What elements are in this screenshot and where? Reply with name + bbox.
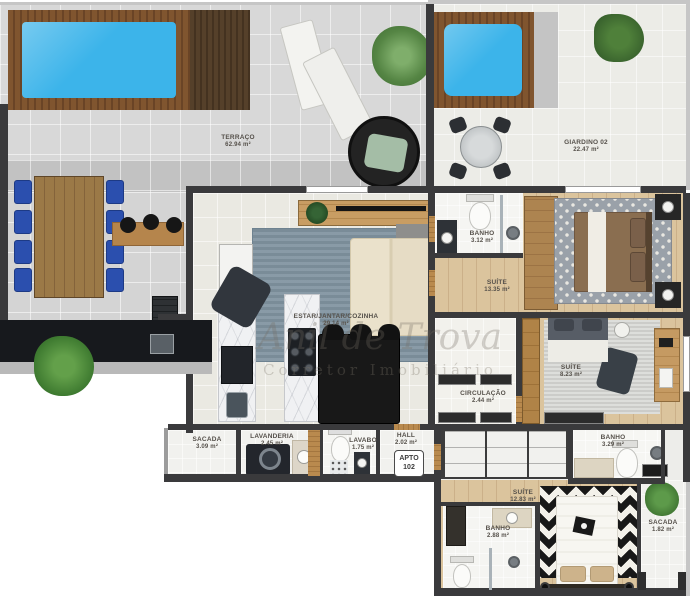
label-circulacao: CIRCULAÇÃO 2.44 m² xyxy=(460,390,506,406)
pool-water xyxy=(22,22,176,98)
dining-chair-blue xyxy=(106,268,124,292)
toilet xyxy=(453,564,471,588)
suite2-door xyxy=(516,396,522,422)
bed-pillow xyxy=(560,566,586,582)
bath-vanity xyxy=(574,458,614,478)
terrace-dining-table xyxy=(34,176,104,298)
wardrobe-door xyxy=(480,412,512,423)
room-area: 2.02 m² xyxy=(395,440,417,448)
suite2-window xyxy=(683,336,690,392)
plant-pot xyxy=(166,217,182,233)
suite1-bottom-wall xyxy=(435,312,683,318)
room-area: 2.44 m² xyxy=(460,398,506,406)
cooktop xyxy=(288,328,316,376)
suite3-bottom-wall xyxy=(434,588,686,596)
room-name: SACADA xyxy=(648,519,677,526)
wardrobe-door xyxy=(480,374,512,385)
dining-chair-blue xyxy=(14,210,32,234)
lamp xyxy=(662,201,674,213)
label-lavabo: LAVABO 1.75 m² xyxy=(349,437,377,453)
toilet xyxy=(331,436,350,462)
balcony-post xyxy=(678,572,686,590)
oven xyxy=(221,346,253,384)
shower-glass xyxy=(489,548,492,590)
room-name: BANHO xyxy=(470,230,495,237)
bed-pillow xyxy=(630,252,646,282)
banho2-right-wall xyxy=(661,428,665,480)
bed-pillow xyxy=(630,218,646,248)
room-name: SUÍTE xyxy=(561,364,581,371)
balcony-post xyxy=(638,572,646,590)
closet-shelving xyxy=(441,429,568,479)
bed-pillow xyxy=(582,319,602,331)
room-name: HALL xyxy=(397,432,415,439)
bed-sheet xyxy=(548,340,608,362)
banho2-left-wall xyxy=(568,428,573,480)
room-area: 29.14 m² xyxy=(294,321,379,329)
room-area: 3.29 m² xyxy=(601,442,626,450)
black-dining-table xyxy=(318,334,400,424)
wardrobe-door xyxy=(438,412,476,423)
terrace-top-border xyxy=(0,2,428,5)
unit-left-wall xyxy=(186,186,193,433)
label-suite2: SUÍTE 8.23 m² xyxy=(560,364,582,380)
room-area: 3.09 m² xyxy=(192,444,221,452)
room-area: 22.47 m² xyxy=(564,147,608,155)
lamp xyxy=(662,289,674,301)
room-name: TERRAÇO xyxy=(221,134,255,141)
desk-item xyxy=(659,368,673,388)
label-suite3: SUÍTE 12.83 m² xyxy=(510,489,536,505)
banho1-bottom-wall xyxy=(435,253,523,258)
toilet xyxy=(469,202,491,230)
label-hall: HALL 2.02 m² xyxy=(395,432,417,448)
room-area: 62.94 m² xyxy=(221,142,255,150)
dining-chair-blue xyxy=(14,240,32,264)
counter-sink xyxy=(150,334,174,354)
side-lamp xyxy=(614,322,630,338)
badge-line1: APTO xyxy=(395,454,423,463)
desk-item xyxy=(659,338,673,347)
room-area: 2.45 m² xyxy=(250,441,294,449)
toilet-tank xyxy=(466,194,494,202)
suite1-door xyxy=(429,270,435,296)
shower-drain xyxy=(330,460,348,474)
wardrobe-door xyxy=(544,412,604,424)
banho3-right-wall xyxy=(535,502,540,590)
label-lavanderia: LAVANDERIA 2.45 m² xyxy=(250,433,294,449)
giardino-divider-wall xyxy=(426,4,434,190)
label-banho2: BANHO 3.29 m² xyxy=(601,434,626,450)
banho2-bottom-wall xyxy=(568,478,665,484)
closet xyxy=(522,318,540,424)
basin xyxy=(506,512,518,524)
room-name: GIARDINO 02 xyxy=(564,139,608,146)
giardino-step xyxy=(534,12,558,108)
bath-cabinet xyxy=(446,506,466,546)
plant-pot xyxy=(120,217,136,233)
badge-line2: 102 xyxy=(395,463,423,472)
bed-pillow xyxy=(554,319,574,331)
label-banho3: BANHO 2.88 m² xyxy=(486,525,511,541)
tv xyxy=(336,206,426,211)
basin xyxy=(441,232,453,244)
sacada2-right-border xyxy=(686,482,690,596)
black-chair xyxy=(378,324,400,340)
label-sacada2: SACADA 1.82 m² xyxy=(648,519,677,535)
shower-glass xyxy=(500,195,503,253)
wardrobe-door xyxy=(438,374,476,385)
counter-ledge xyxy=(0,362,212,374)
room-area: 1.75 m² xyxy=(349,445,377,453)
room-name: LAVANDERIA xyxy=(250,433,294,440)
slat-deck xyxy=(190,10,250,110)
sacada1-left-border xyxy=(164,428,168,474)
label-banho1: BANHO 3.12 m² xyxy=(470,230,495,246)
bed-runner xyxy=(588,212,606,292)
dining-chair-blue xyxy=(106,180,124,204)
giardino-top-border xyxy=(428,0,690,4)
bed-pillow xyxy=(590,566,614,582)
room-area: 13.35 m² xyxy=(484,287,510,295)
daybed-cushions xyxy=(363,133,408,173)
counter-plant xyxy=(34,336,94,396)
toilet-tank xyxy=(450,556,474,563)
basin xyxy=(357,458,367,468)
washer-door xyxy=(259,448,281,470)
room-name: CIRCULAÇÃO xyxy=(460,390,506,397)
toilet xyxy=(616,448,638,478)
room-name: BANHO xyxy=(601,434,626,441)
room-area: 2.88 m² xyxy=(486,533,511,541)
label-suite1: SUÍTE 13.35 m² xyxy=(484,279,510,295)
terrace-left-wall xyxy=(0,104,8,334)
circulacao-floor xyxy=(435,318,516,426)
room-area: 3.12 m² xyxy=(470,238,495,246)
banho1-door xyxy=(429,216,435,242)
headboard xyxy=(646,212,652,292)
room-name: BANHO xyxy=(486,525,511,532)
granite-counter xyxy=(0,320,212,362)
door-leaf xyxy=(308,430,320,476)
room-name: LAVABO xyxy=(349,437,377,444)
room-name: ESTAR/JANTAR/COZINHA xyxy=(294,313,379,320)
label-sacada1: SACADA 3.09 m² xyxy=(192,436,221,452)
hedge xyxy=(594,14,644,62)
room-area: 12.83 m² xyxy=(510,497,536,505)
room-area: 1.82 m² xyxy=(648,527,677,535)
console-plant xyxy=(306,202,328,224)
shower-head xyxy=(508,556,520,568)
room-name: SACADA xyxy=(192,436,221,443)
kitchen-sink xyxy=(226,392,248,418)
lavanderia-left-wall xyxy=(236,428,241,476)
suite3-door xyxy=(434,444,441,470)
palm-plant xyxy=(372,26,432,86)
suite1-window xyxy=(565,186,641,193)
giardino-right-border xyxy=(686,4,690,190)
balcony-plant xyxy=(645,482,679,516)
apartment-badge: APTO 102 xyxy=(394,450,424,477)
wardrobe xyxy=(524,196,558,310)
label-giardino: GIARDINO 02 22.47 m² xyxy=(564,139,608,155)
decor-dot xyxy=(581,523,587,529)
room-name: SUÍTE xyxy=(513,489,533,496)
plant-pot xyxy=(143,214,159,230)
room-area: 8.23 m² xyxy=(560,372,582,380)
room-name: SUÍTE xyxy=(487,279,507,286)
dining-chair-blue xyxy=(14,180,32,204)
floor-plan: TERRAÇO 62.94 m² GIARDINO 02 22.47 m² BA… xyxy=(0,0,692,600)
dining-chair-blue xyxy=(14,268,32,292)
label-terraco: TERRAÇO 62.94 m² xyxy=(221,134,255,150)
band-top-wall xyxy=(168,424,686,430)
shower-head xyxy=(506,226,520,240)
entry-door xyxy=(394,424,420,430)
label-estar: ESTAR/JANTAR/COZINHA 29.14 m² xyxy=(294,313,379,329)
living-window xyxy=(306,186,368,193)
patio-table xyxy=(460,126,502,168)
giardino-pool-water xyxy=(444,24,522,96)
